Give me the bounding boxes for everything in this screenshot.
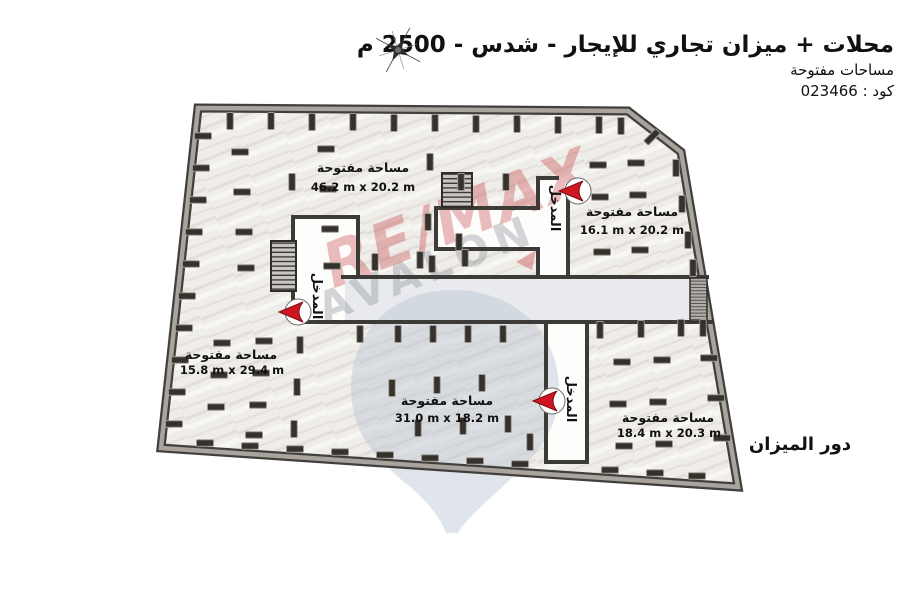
- column-marker: [650, 399, 667, 406]
- column-marker: [628, 160, 645, 167]
- column-marker: [458, 174, 465, 191]
- column-marker: [594, 249, 611, 256]
- column-marker: [616, 443, 633, 450]
- column-marker: [500, 326, 507, 343]
- column-marker: [456, 234, 463, 251]
- zone-label-bottom-middle: مساحة مفتوحة: [401, 393, 493, 408]
- column-marker: [610, 401, 627, 408]
- column-marker: [227, 113, 234, 130]
- column-marker: [246, 432, 263, 439]
- staircase-top-icon: [442, 173, 472, 207]
- entrance-label-left: المدخل: [309, 273, 324, 320]
- column-marker: [602, 467, 619, 474]
- column-marker: [432, 115, 439, 132]
- floor-plan: محلات + ميزان تجاري للإيجار - شدس - 2500…: [0, 0, 900, 599]
- column-marker: [357, 326, 364, 343]
- column-marker: [597, 322, 604, 339]
- column-marker: [462, 250, 469, 267]
- column-marker: [503, 174, 510, 191]
- column-marker: [654, 357, 671, 364]
- column-marker: [234, 189, 251, 196]
- column-marker: [647, 470, 664, 477]
- column-marker: [689, 473, 706, 480]
- column-marker: [514, 116, 521, 133]
- column-marker: [592, 194, 609, 201]
- column-marker: [183, 261, 200, 268]
- column-marker: [179, 293, 196, 300]
- page-title: محلات + ميزان تجاري للإيجار - شدس - 2500…: [357, 32, 894, 58]
- column-marker: [527, 434, 534, 451]
- column-marker: [250, 402, 267, 409]
- column-marker: [673, 160, 680, 177]
- zone-label-left: مساحة مفتوحة: [185, 347, 277, 362]
- column-marker: [479, 375, 486, 392]
- column-marker: [638, 321, 645, 338]
- column-marker: [395, 326, 402, 343]
- entrance-label-top: المدخل: [547, 185, 562, 232]
- entrance-label-bottom: المدخل: [563, 376, 578, 423]
- column-marker: [422, 455, 439, 462]
- column-marker: [332, 449, 349, 456]
- column-marker: [190, 197, 207, 204]
- column-marker: [632, 247, 649, 254]
- column-marker: [590, 162, 607, 169]
- column-marker: [322, 226, 339, 233]
- staircase-left-icon: [271, 241, 296, 291]
- column-marker: [425, 214, 432, 231]
- column-marker: [236, 229, 253, 236]
- column-marker: [238, 265, 255, 272]
- zone-label-top-left: مساحة مفتوحة: [317, 160, 409, 175]
- column-marker: [309, 114, 316, 131]
- page: { "header": { "title": "محلات + ميزان تج…: [0, 0, 900, 599]
- column-marker: [429, 256, 436, 273]
- column-marker: [678, 320, 685, 337]
- column-marker: [434, 377, 441, 394]
- column-marker: [291, 421, 298, 438]
- column-marker: [430, 326, 437, 343]
- zone-dims-top-left: 46.2 m x 20.2 m: [311, 180, 415, 194]
- column-marker: [214, 340, 231, 347]
- column-marker: [186, 229, 203, 236]
- column-marker: [505, 416, 512, 433]
- column-marker: [372, 254, 379, 271]
- column-marker: [232, 149, 249, 156]
- column-marker: [427, 154, 434, 171]
- column-marker: [656, 441, 673, 448]
- floor-label: دور الميزان: [749, 434, 851, 455]
- column-marker: [289, 174, 296, 191]
- page-subtitle: مساحات مفتوحة: [790, 61, 894, 79]
- column-marker: [297, 337, 304, 354]
- column-marker: [630, 192, 647, 199]
- column-marker: [389, 380, 396, 397]
- column-marker: [197, 440, 214, 447]
- column-marker: [256, 338, 273, 345]
- column-marker: [324, 263, 341, 270]
- column-marker: [512, 461, 529, 468]
- column-marker: [350, 114, 357, 131]
- column-marker: [690, 260, 697, 277]
- column-marker: [193, 165, 210, 172]
- column-marker: [596, 117, 603, 134]
- column-marker: [417, 252, 424, 269]
- column-marker: [195, 133, 212, 140]
- column-marker: [166, 421, 183, 428]
- column-marker: [555, 117, 562, 134]
- ramp-right-icon: [690, 278, 707, 321]
- column-marker: [287, 446, 304, 453]
- column-marker: [242, 443, 259, 450]
- column-marker: [618, 118, 625, 135]
- column-marker: [685, 232, 692, 249]
- column-marker: [377, 452, 394, 459]
- column-marker: [294, 379, 301, 396]
- column-marker: [176, 325, 193, 332]
- column-marker: [473, 116, 480, 133]
- zone-dims-top-right: 16.1 m x 20.2 m: [580, 223, 684, 237]
- column-marker: [169, 389, 186, 396]
- column-marker: [467, 458, 484, 465]
- column-marker: [318, 146, 335, 153]
- column-marker: [708, 395, 725, 402]
- column-marker: [208, 404, 225, 411]
- listing-code: كود : 023466: [801, 82, 895, 100]
- column-marker: [701, 355, 718, 362]
- zone-dims-bottom-middle: 31.0 m x 18.2 m: [395, 411, 499, 425]
- zone-label-bottom-right: مساحة مفتوحة: [622, 410, 714, 425]
- column-marker: [268, 113, 275, 130]
- column-marker: [391, 115, 398, 132]
- column-marker: [465, 326, 472, 343]
- zone-label-top-right: مساحة مفتوحة: [586, 204, 678, 219]
- zone-dims-bottom-right: 18.4 m x 20.3 m: [617, 426, 721, 440]
- zone-dims-left: 15.8 m x 29.4 m: [180, 363, 284, 377]
- column-marker: [679, 196, 686, 213]
- column-marker: [614, 359, 631, 366]
- column-marker: [700, 320, 707, 337]
